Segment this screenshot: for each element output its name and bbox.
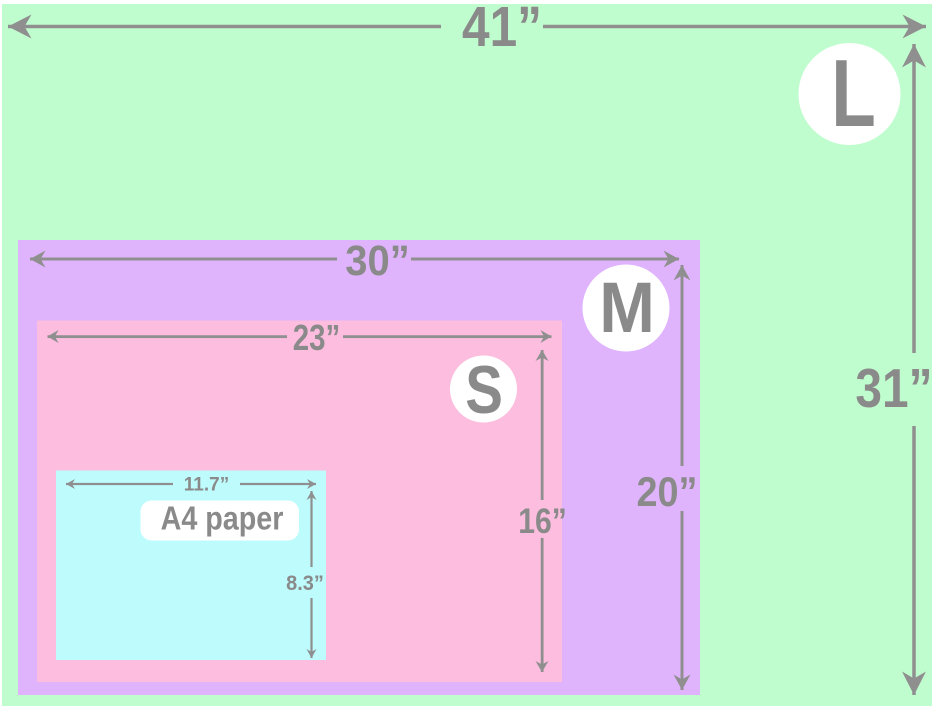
svg-text:41”: 41” xyxy=(462,0,542,59)
svg-text:8.3”: 8.3” xyxy=(286,572,324,596)
svg-text:31”: 31” xyxy=(855,357,932,419)
svg-text:M: M xyxy=(599,268,655,347)
svg-text:A4 paper: A4 paper xyxy=(161,500,284,537)
svg-text:20”: 20” xyxy=(637,469,698,515)
svg-text:S: S xyxy=(465,352,503,428)
svg-text:11.7”: 11.7” xyxy=(184,475,229,496)
svg-text:30”: 30” xyxy=(345,236,409,285)
svg-text:23”: 23” xyxy=(293,317,341,357)
svg-text:L: L xyxy=(831,40,876,147)
svg-text:16”: 16” xyxy=(518,501,567,541)
